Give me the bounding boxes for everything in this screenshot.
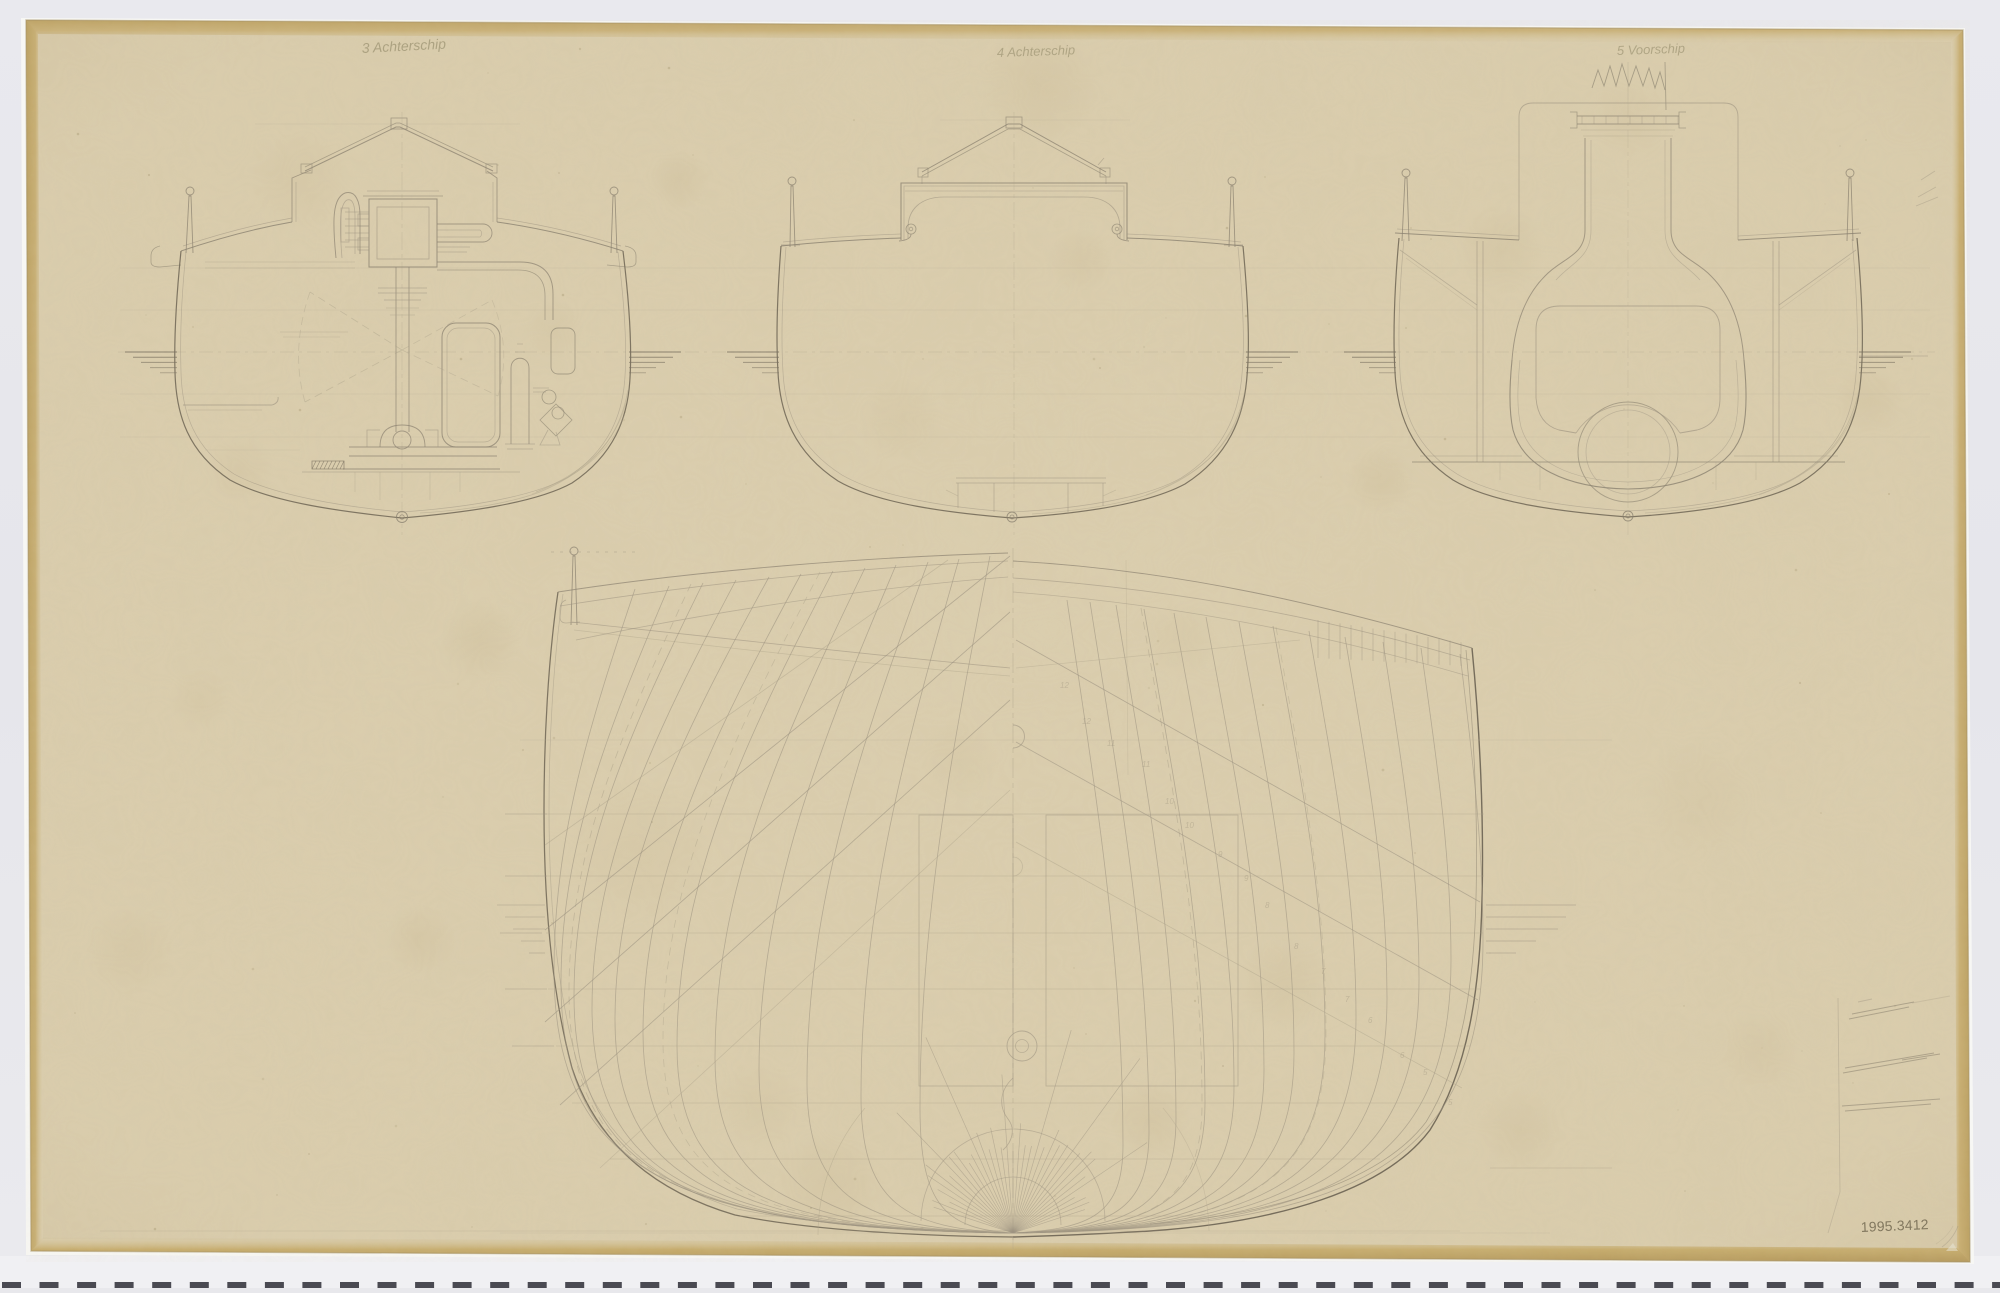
svg-text:12: 12 — [1060, 681, 1069, 690]
svg-text:1995.3412: 1995.3412 — [1860, 1216, 1929, 1235]
svg-text:5: 5 — [1448, 1098, 1453, 1107]
svg-text:7: 7 — [1321, 967, 1326, 976]
svg-text:8: 8 — [1265, 901, 1270, 910]
svg-text:12: 12 — [1082, 717, 1091, 726]
svg-text:5: 5 — [1423, 1068, 1428, 1077]
svg-text:7: 7 — [1345, 995, 1350, 1004]
svg-text:10: 10 — [1165, 797, 1174, 806]
svg-text:11: 11 — [1142, 760, 1150, 769]
svg-text:11: 11 — [1107, 739, 1115, 748]
svg-text:9: 9 — [1244, 874, 1249, 883]
svg-text:9: 9 — [1218, 850, 1223, 859]
svg-text:6: 6 — [1400, 1051, 1405, 1060]
svg-text:4 Achterschip: 4 Achterschip — [997, 42, 1076, 60]
svg-text:10: 10 — [1185, 821, 1194, 830]
svg-text:8: 8 — [1294, 942, 1299, 951]
svg-text:5 Voorschip: 5 Voorschip — [1617, 41, 1686, 58]
svg-text:6: 6 — [1368, 1016, 1373, 1025]
